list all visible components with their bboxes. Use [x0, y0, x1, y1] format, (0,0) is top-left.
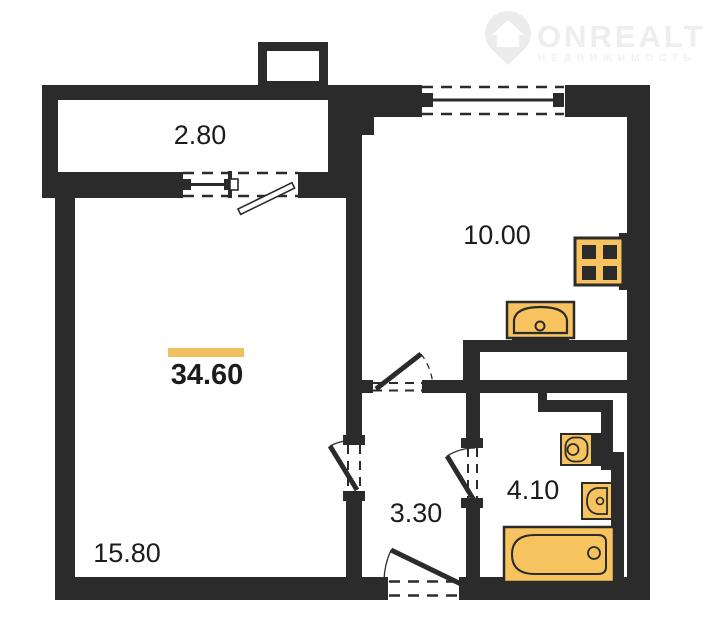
stove-burner [603, 266, 617, 280]
stove-burner [582, 245, 596, 259]
door-jamb [343, 491, 365, 501]
living-room-door [330, 440, 360, 491]
door-jamb [374, 583, 380, 592]
brand-text: ONREALT [537, 19, 706, 54]
door-swing-arc [384, 550, 391, 581]
wall-segment [55, 577, 385, 600]
wall-segment [346, 493, 362, 583]
door-leaf [391, 550, 461, 584]
wall-segment [55, 172, 75, 600]
toilet-icon [561, 434, 592, 465]
bath-sink-icon [582, 483, 612, 519]
total-area-accent-bar [168, 348, 244, 357]
door-swing-arc [447, 448, 475, 456]
window-end [422, 93, 433, 107]
brand-tagline: НЕДВИЖИМОСТЬ [538, 52, 696, 64]
door-jamb [461, 438, 483, 448]
entrance-door [384, 550, 461, 596]
door-jamb [459, 577, 468, 600]
stove-burner [582, 266, 596, 280]
hallway-area-label: 3.30 [390, 498, 443, 528]
kitchen-area-label: 10.00 [463, 220, 531, 250]
door-opening-dashes [389, 582, 459, 596]
shaft-outline [263, 47, 324, 86]
door-leaf [330, 446, 357, 490]
wall-segment [466, 393, 480, 445]
wall-segment [422, 380, 650, 393]
window-end [183, 179, 191, 190]
wall-segment [362, 380, 373, 393]
balcony-door [228, 171, 298, 214]
stove-burner [603, 245, 617, 259]
floor-plan-page: ONREALT НЕДВИЖИМОСТЬ [0, 0, 708, 623]
balcony-window [183, 173, 232, 196]
wall-segment [466, 506, 480, 600]
total-area-label: 34.60 [171, 359, 244, 391]
balcony-area-label: 2.80 [174, 120, 227, 150]
stove-icon [575, 238, 623, 285]
bathroom-door [447, 448, 477, 502]
window-end [553, 93, 564, 107]
living-room-area-label: 15.80 [93, 538, 161, 568]
bathroom-area-label: 4.10 [507, 475, 560, 505]
watermark: ONREALT НЕДВИЖИМОСТЬ [485, 11, 706, 65]
kitchen-sink-icon [507, 302, 574, 345]
wall-segment [463, 340, 480, 393]
kitchen-window [422, 87, 564, 114]
bathtub-icon [504, 527, 614, 582]
door-leaf [238, 183, 295, 215]
door-leaf [376, 354, 421, 389]
door-jamb-notch [230, 179, 238, 190]
floor-plan: ONREALT НЕДВИЖИМОСТЬ [0, 0, 708, 623]
wall-segment [346, 117, 362, 443]
door-leaf [447, 456, 475, 502]
